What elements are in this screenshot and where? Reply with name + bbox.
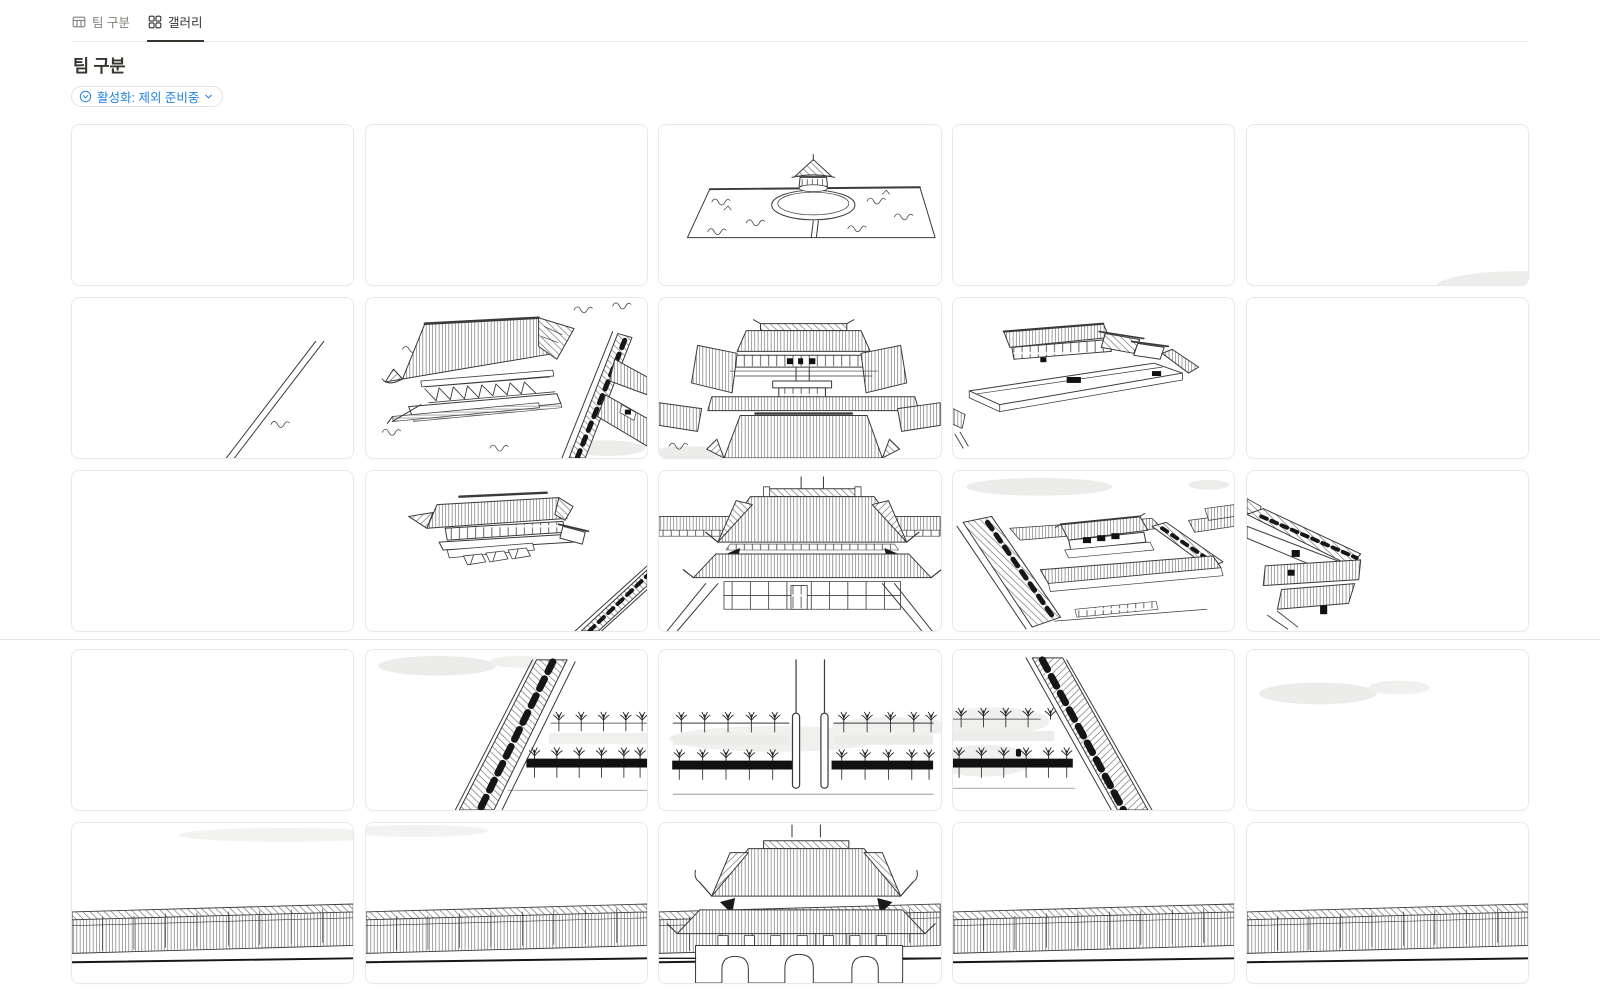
sketch-central-halls <box>659 298 940 458</box>
gallery-card[interactable] <box>952 297 1235 459</box>
gallery-card[interactable] <box>952 470 1235 632</box>
gallery-card[interactable] <box>1246 822 1529 984</box>
sketch-empty <box>366 125 647 285</box>
gallery-card[interactable] <box>71 124 354 286</box>
gallery-card[interactable] <box>1246 297 1529 459</box>
sketch-hall-with-steps <box>366 471 647 631</box>
gallery-icon <box>148 15 162 29</box>
gallery-card[interactable] <box>365 124 648 286</box>
sketch-inner-gate <box>659 471 940 631</box>
sketch-cloud-corner <box>1247 125 1528 285</box>
gallery-card[interactable] <box>952 822 1235 984</box>
filter-circle-icon <box>79 90 92 103</box>
gallery-card[interactable] <box>952 649 1235 811</box>
sketch-west-wall-trees <box>366 650 647 810</box>
sketch-outer-wall <box>366 823 647 983</box>
page-content-top: 팀 구분 갤러리 팀 구분 활성화: 제외 준비중 <box>0 0 1600 632</box>
gallery-card[interactable] <box>658 297 941 459</box>
gallery-card[interactable] <box>952 124 1235 286</box>
table-icon <box>72 15 86 29</box>
tab-label: 갤러리 <box>168 12 203 31</box>
gallery-card[interactable] <box>365 297 648 459</box>
view-tab-bar: 팀 구분 갤러리 <box>71 0 1529 42</box>
sketch-empty <box>72 650 353 810</box>
sketch-outer-wall <box>72 823 353 983</box>
page-content-bottom <box>0 649 1600 984</box>
gallery-card[interactable] <box>71 822 354 984</box>
tab-team-table[interactable]: 팀 구분 <box>71 12 131 42</box>
gallery-card[interactable] <box>71 470 354 632</box>
gallery-grid-bottom <box>71 649 1529 984</box>
sketch-pavilion-hall <box>366 298 647 458</box>
sketch-empty <box>953 125 1234 285</box>
sketch-empty <box>72 471 353 631</box>
sketch-walled-compound <box>953 298 1234 458</box>
gallery-card[interactable] <box>1246 649 1529 811</box>
gallery-card[interactable] <box>658 649 941 811</box>
gallery-card[interactable] <box>71 297 354 459</box>
sketch-east-wall-trees <box>953 650 1234 810</box>
filter-chip[interactable]: 활성화: 제외 준비중 <box>71 86 223 107</box>
gallery-card[interactable] <box>365 470 648 632</box>
gallery-card[interactable] <box>365 649 648 811</box>
tab-label: 팀 구분 <box>92 12 130 31</box>
filter-chip-label: 활성화: 제외 준비중 <box>97 87 199 106</box>
page-title: 팀 구분 <box>73 55 1529 77</box>
sketch-cloud-top <box>1247 650 1528 810</box>
sketch-empty <box>72 125 353 285</box>
sketch-outer-wall <box>1247 823 1528 983</box>
chevron-down-icon <box>204 92 213 101</box>
sketch-pond-edge <box>72 298 353 458</box>
sketch-empty <box>1247 298 1528 458</box>
sketch-main-gate <box>659 823 940 983</box>
sketch-outer-wall <box>953 823 1234 983</box>
gallery-grid-top <box>71 124 1529 632</box>
sketch-corridor-roofs <box>1247 471 1528 631</box>
sketch-walled-compounds <box>953 471 1234 631</box>
sketch-forecourt-trees <box>659 650 940 810</box>
filter-bar: 활성화: 제외 준비중 <box>71 86 1529 108</box>
gallery-card[interactable] <box>1246 470 1529 632</box>
gallery-card[interactable] <box>365 822 648 984</box>
gallery-card[interactable] <box>658 822 941 984</box>
gallery-card[interactable] <box>658 470 941 632</box>
sketch-pond-pavilion <box>659 125 940 285</box>
gallery-card[interactable] <box>658 124 941 286</box>
gallery-card[interactable] <box>71 649 354 811</box>
gallery-card[interactable] <box>1246 124 1529 286</box>
page-divider <box>0 639 1600 640</box>
tab-gallery[interactable]: 갤러리 <box>147 12 204 42</box>
